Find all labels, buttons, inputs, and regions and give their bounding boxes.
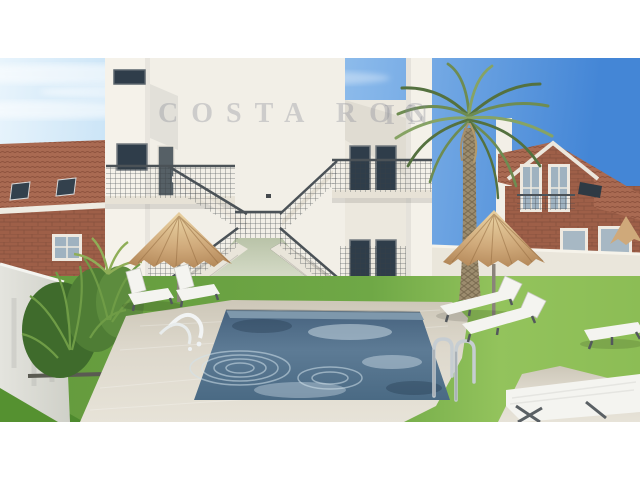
slab-shadow [332,198,432,203]
walkway-railing-right [332,160,432,192]
gable-balcony-railing [517,195,575,210]
umbrella-pole [492,264,496,318]
letterboxed-photo-frame: COSTA ROC IN [0,0,640,480]
tower-slot-window [114,70,145,84]
trunk-texture [459,128,481,300]
property-render-photo: COSTA ROC IN [0,58,640,422]
wall-light-fixture [266,194,271,198]
left-roof-texture [0,140,110,214]
water-glint [362,355,422,369]
landing-railing [235,212,282,238]
roof-window [10,182,30,200]
render-scene [0,58,640,422]
water-shadow-patch [232,319,292,333]
roof-window [56,178,76,196]
water-glint [308,324,392,340]
apartment-building [105,58,432,308]
